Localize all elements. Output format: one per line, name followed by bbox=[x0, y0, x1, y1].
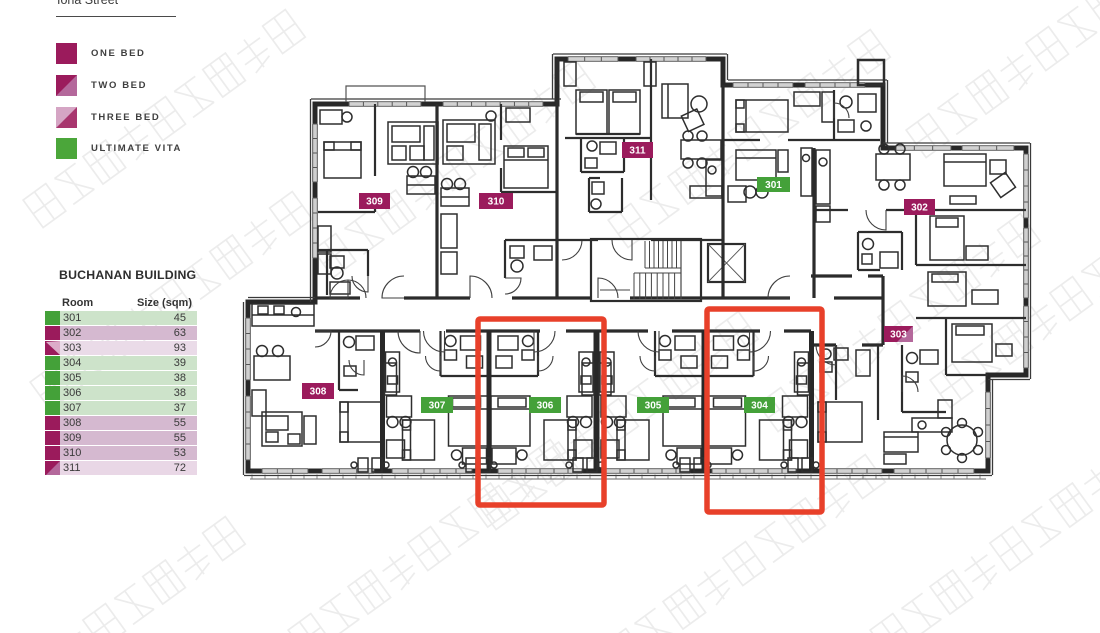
svg-text:306: 306 bbox=[537, 401, 554, 412]
svg-text:308: 308 bbox=[310, 387, 327, 398]
svg-text:305: 305 bbox=[645, 401, 662, 412]
svg-text:302: 302 bbox=[911, 203, 928, 214]
svg-text:309: 309 bbox=[366, 197, 383, 208]
svg-text:303: 303 bbox=[890, 330, 907, 341]
svg-text:307: 307 bbox=[429, 401, 446, 412]
svg-text:310: 310 bbox=[488, 197, 505, 208]
svg-text:301: 301 bbox=[765, 180, 782, 191]
svg-text:311: 311 bbox=[629, 146, 646, 157]
svg-text:304: 304 bbox=[751, 401, 768, 412]
